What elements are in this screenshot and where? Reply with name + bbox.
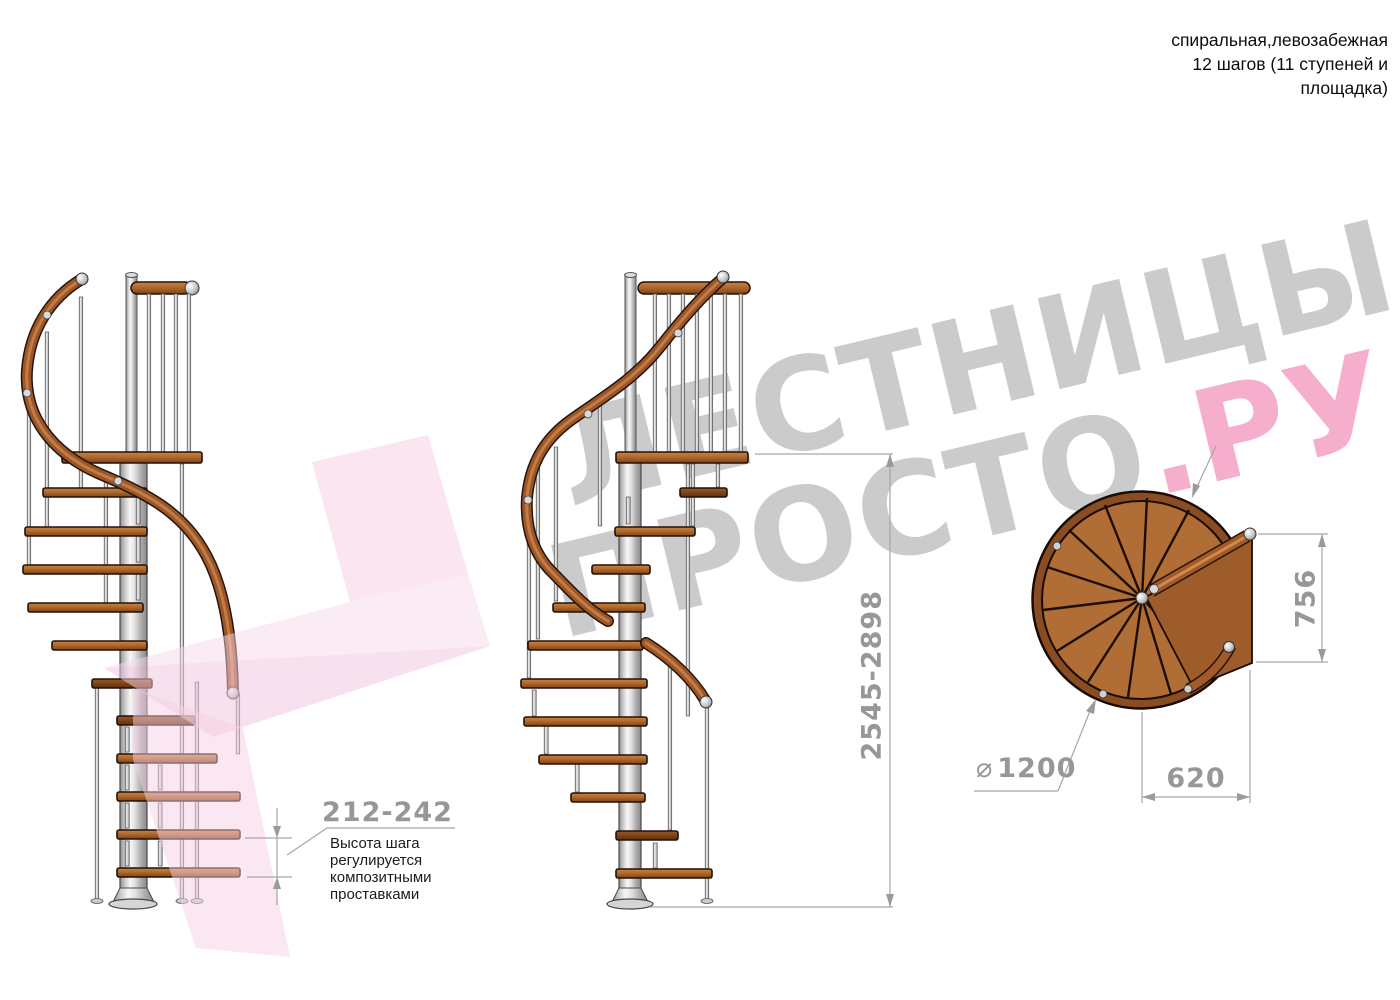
title-block: спиральная,левозабежная 12 шагов (11 сту… [1171, 28, 1388, 100]
dim-step-height-label: 212-242 [322, 797, 453, 828]
rim-baluster [1053, 542, 1061, 550]
dim-total-height-label: 2545-2898 [857, 601, 888, 761]
plan-view [1033, 492, 1257, 709]
guard-balusters [147, 294, 191, 452]
platform-guard-rail [131, 281, 199, 452]
drawing-page: { "header": { "line1": "спиральная,левоз… [0, 0, 1400, 1000]
rim-baluster [1099, 690, 1107, 698]
title-line2: 12 шагов (11 ступеней и [1171, 52, 1388, 76]
side-view-b [521, 271, 750, 909]
baluster-feet [701, 899, 713, 904]
title-line3: площадка) [1171, 76, 1388, 100]
plan-leader [1192, 446, 1216, 498]
guard-balusters [653, 294, 743, 452]
dim-diameter-label: ⌀1200 [976, 753, 1076, 784]
diameter-icon: ⌀ [976, 753, 993, 784]
center-pole-hub [1136, 592, 1148, 604]
step-height-note: Высота шага регулируется композитными пр… [330, 835, 470, 903]
diameter-value: 1200 [997, 753, 1076, 784]
staircase-drawing [0, 0, 1400, 1000]
dim-platform-width-label: 620 [1146, 763, 1246, 794]
title-line1: спиральная,левозабежная [1171, 28, 1388, 52]
dim-platform-depth-label: 756 [1291, 549, 1322, 649]
